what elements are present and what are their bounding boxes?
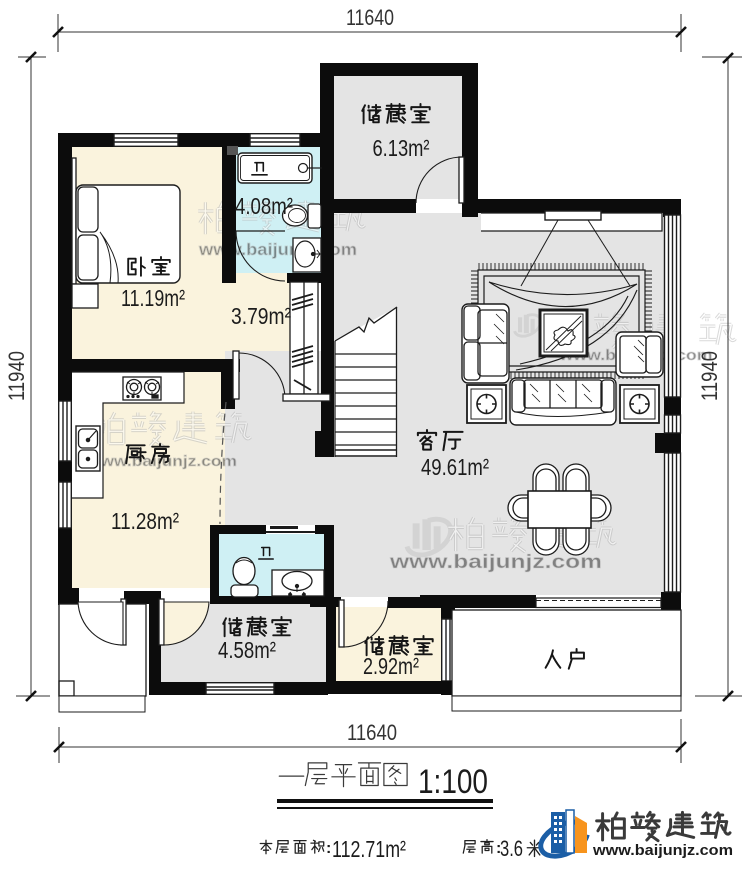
svg-text:11640: 11640 (346, 5, 394, 30)
svg-text:3.6: 3.6 (500, 836, 523, 861)
svg-text:11.28m²: 11.28m² (111, 508, 179, 534)
svg-text::: : (326, 840, 331, 857)
svg-text:11.19m²: 11.19m² (121, 285, 185, 311)
svg-text:3.79m²: 3.79m² (231, 303, 291, 329)
svg-text:6.13m²: 6.13m² (373, 135, 430, 161)
svg-text:www.baijunjz.com: www.baijunjz.com (592, 843, 733, 859)
svg-text:11940: 11940 (697, 351, 722, 401)
svg-text:112.71m²: 112.71m² (332, 836, 406, 862)
svg-text:4.08m²: 4.08m² (235, 193, 293, 219)
svg-text:11940: 11940 (4, 351, 29, 401)
svg-text:49.61m²: 49.61m² (421, 454, 489, 480)
svg-text:1:100: 1:100 (418, 763, 488, 801)
svg-text:4.58m²: 4.58m² (218, 637, 276, 663)
svg-text:2.92m²: 2.92m² (363, 653, 419, 679)
svg-text:11640: 11640 (347, 720, 397, 745)
svg-text:www.baijunjz.com: www.baijunjz.com (389, 552, 602, 573)
